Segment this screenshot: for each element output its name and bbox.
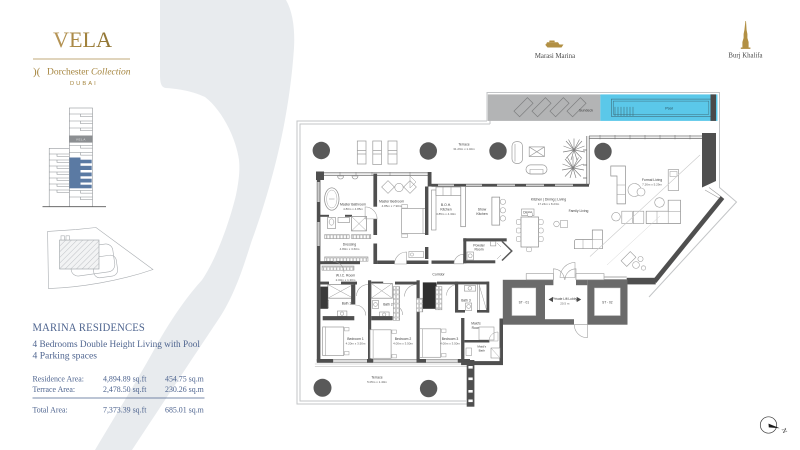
svg-text:MARINA RESIDENCES: MARINA RESIDENCES	[33, 320, 146, 334]
svg-text:17.24m x 8.23m: 17.24m x 8.23m	[538, 202, 560, 206]
svg-text:Terrace Area:: Terrace Area:	[33, 385, 76, 394]
svg-text:VELA: VELA	[76, 138, 86, 142]
svg-text:4 Bedrooms Double Height Livin: 4 Bedrooms Double Height Living with Poo…	[33, 339, 201, 350]
svg-text:Formal Living: Formal Living	[642, 178, 662, 182]
svg-text:Terrace: Terrace	[458, 143, 469, 147]
svg-text:ST - 01: ST - 01	[519, 301, 530, 305]
svg-text:Family Living: Family Living	[569, 209, 589, 213]
svg-text:4.20m x 3.50m: 4.20m x 3.50m	[346, 342, 366, 346]
svg-text:Room: Room	[474, 248, 483, 252]
svg-text:Total Area:: Total Area:	[33, 406, 68, 415]
svg-text:Dorchester Collection: Dorchester Collection	[47, 67, 131, 78]
svg-text:Corridor: Corridor	[432, 273, 445, 277]
svg-text:DUBAI: DUBAI	[70, 81, 98, 87]
svg-text:)(: )(	[33, 66, 41, 78]
svg-text:Kitchen | Dining | Living: Kitchen | Dining | Living	[531, 198, 566, 202]
svg-text:4.00m x 3.50m: 4.00m x 3.50m	[440, 342, 460, 346]
svg-text:Kitchen: Kitchen	[440, 208, 451, 212]
svg-text:4.85m x 7.90m: 4.85m x 7.90m	[382, 204, 402, 208]
svg-text:7.26m x 5.29m: 7.26m x 5.29m	[642, 183, 662, 187]
svg-text:7,373.39 sq.ft: 7,373.39 sq.ft	[103, 406, 147, 415]
svg-text:B.O.H.: B.O.H.	[441, 203, 451, 207]
svg-text:685.01 sq.m: 685.01 sq.m	[165, 406, 205, 415]
svg-text:Terrace: Terrace	[371, 376, 382, 380]
svg-text:230.26 sq.m: 230.26 sq.m	[165, 385, 205, 394]
svg-text:3.85m x 4.30m: 3.85m x 4.30m	[436, 212, 456, 216]
svg-text:Sundeck: Sundeck	[579, 109, 593, 113]
svg-text:2.00m x 1.30m: 2.00m x 1.30m	[336, 278, 356, 282]
svg-text:20.5 m: 20.5 m	[560, 302, 570, 306]
svg-text:Bedroom 1: Bedroom 1	[347, 337, 364, 341]
svg-text:2,478.50 sq.ft: 2,478.50 sq.ft	[103, 385, 147, 394]
svg-text:Bath 3: Bath 3	[461, 299, 471, 303]
svg-text:Master Bedroom: Master Bedroom	[379, 200, 404, 204]
svg-text:4.80m x 4.85m: 4.80m x 4.85m	[343, 207, 363, 211]
svg-text:Dressing: Dressing	[343, 243, 356, 247]
svg-text:4.80m x 3.60m: 4.80m x 3.60m	[340, 247, 360, 251]
svg-text:4,894.89 sq.ft: 4,894.89 sq.ft	[103, 375, 147, 384]
svg-text:Bath: Bath	[479, 348, 486, 352]
svg-text:Master Bathroom: Master Bathroom	[340, 203, 366, 207]
svg-text:Show: Show	[478, 208, 487, 212]
svg-text:ST - 02: ST - 02	[602, 301, 613, 305]
svg-text:Bedroom 2: Bedroom 2	[395, 337, 412, 341]
svg-text:VELA: VELA	[53, 27, 112, 52]
svg-text:Burj Khalifa: Burj Khalifa	[728, 53, 762, 60]
svg-text:Bath 2: Bath 2	[383, 303, 393, 307]
svg-text:Residence Area:: Residence Area:	[33, 375, 85, 384]
svg-text:4.00m x 3.50m: 4.00m x 3.50m	[393, 342, 413, 346]
svg-text:Pool: Pool	[665, 107, 672, 111]
svg-text:Private Lift Lobby: Private Lift Lobby	[552, 297, 577, 301]
svg-text:Kitchen: Kitchen	[476, 212, 487, 216]
svg-text:5.05m x 1.40m: 5.05m x 1.40m	[367, 380, 387, 384]
svg-text:4 Parking spaces: 4 Parking spaces	[33, 351, 98, 362]
svg-text:454.75 sq.m: 454.75 sq.m	[165, 375, 205, 384]
svg-text:Marasi Marina: Marasi Marina	[535, 53, 575, 60]
svg-text:31.29m x 1.40m: 31.29m x 1.40m	[453, 147, 475, 151]
svg-text:Bedroom 3: Bedroom 3	[442, 337, 459, 341]
svg-text:Bath 1: Bath 1	[342, 302, 352, 306]
